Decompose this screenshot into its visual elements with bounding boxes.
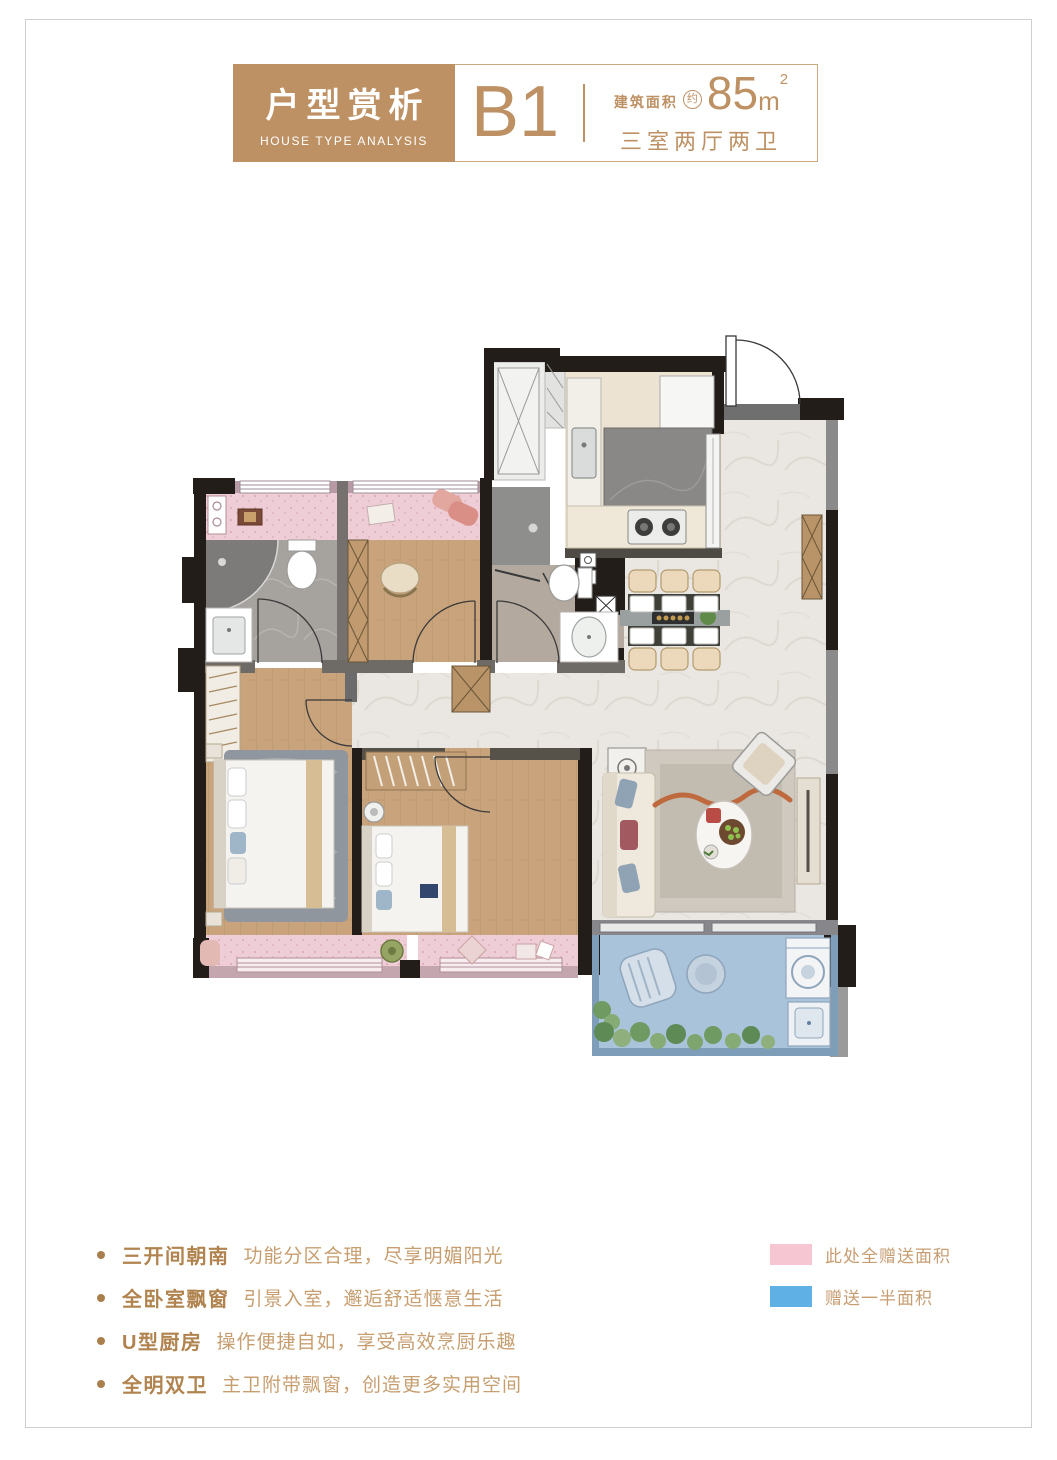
bullet-dot-icon bbox=[97, 1337, 105, 1345]
area-value: 85 bbox=[707, 70, 758, 116]
area-legend: 此处全赠送面积 赠送一半面积 bbox=[770, 1242, 951, 1309]
legend-row-full-gift: 此处全赠送面积 bbox=[770, 1242, 951, 1267]
area-line: 建筑面积 约 85 m 2 bbox=[614, 70, 788, 116]
feature-row: 全明双卫 主卫附带飘窗，创造更多实用空间 bbox=[97, 1369, 657, 1398]
feature-desc: 主卫附带飘窗，创造更多实用空间 bbox=[222, 1370, 522, 1397]
area-superscript: 2 bbox=[780, 70, 788, 87]
feature-title: 全明双卫 bbox=[122, 1369, 208, 1398]
approx-circle-icon: 约 bbox=[683, 90, 702, 109]
feature-desc: 操作便捷自如，享受高效烹厨乐趣 bbox=[216, 1327, 516, 1354]
page-title: 户型赏析 bbox=[259, 78, 430, 127]
feature-list: 三开间朝南 功能分区合理，尽享明媚阳光 全卧室飘窗 引景入室，邂逅舒适惬意生活 … bbox=[97, 1240, 657, 1398]
title-gold-box: 户型赏析 HOUSE TYPE ANALYSIS bbox=[233, 64, 455, 162]
feature-row: 三开间朝南 功能分区合理，尽享明媚阳光 bbox=[97, 1240, 657, 1269]
feature-title: 三开间朝南 bbox=[122, 1240, 230, 1269]
area-label: 建筑面积 bbox=[614, 95, 678, 116]
legend-label: 赠送一半面积 bbox=[825, 1284, 933, 1309]
feature-desc: 引景入室，邂逅舒适惬意生活 bbox=[244, 1284, 504, 1311]
feature-row: 全卧室飘窗 引景入室，邂逅舒适惬意生活 bbox=[97, 1283, 657, 1312]
bullet-dot-icon bbox=[97, 1294, 105, 1302]
feature-desc: 功能分区合理，尽享明媚阳光 bbox=[244, 1241, 504, 1268]
legend-swatch-blue bbox=[770, 1286, 812, 1307]
unit-spec: 建筑面积 约 85 m 2 三室两厅两卫 bbox=[585, 65, 817, 161]
rooms-summary: 三室两厅两卫 bbox=[620, 124, 782, 156]
legend-row-half-gift: 赠送一半面积 bbox=[770, 1284, 951, 1309]
unit-type-label: B1 bbox=[455, 65, 575, 161]
feature-title: U型厨房 bbox=[122, 1326, 202, 1355]
floor-plan bbox=[175, 330, 870, 1070]
feature-row: U型厨房 操作便捷自如，享受高效烹厨乐趣 bbox=[97, 1326, 657, 1355]
title-block: 户型赏析 HOUSE TYPE ANALYSIS B1 建筑面积 约 85 m … bbox=[233, 64, 818, 162]
page-subtitle: HOUSE TYPE ANALYSIS bbox=[260, 134, 428, 148]
area-unit: m bbox=[758, 88, 780, 116]
bullet-dot-icon bbox=[97, 1251, 105, 1259]
legend-label: 此处全赠送面积 bbox=[825, 1242, 951, 1267]
bullet-dot-icon bbox=[97, 1380, 105, 1388]
legend-swatch-pink bbox=[770, 1244, 812, 1265]
feature-title: 全卧室飘窗 bbox=[122, 1283, 230, 1312]
